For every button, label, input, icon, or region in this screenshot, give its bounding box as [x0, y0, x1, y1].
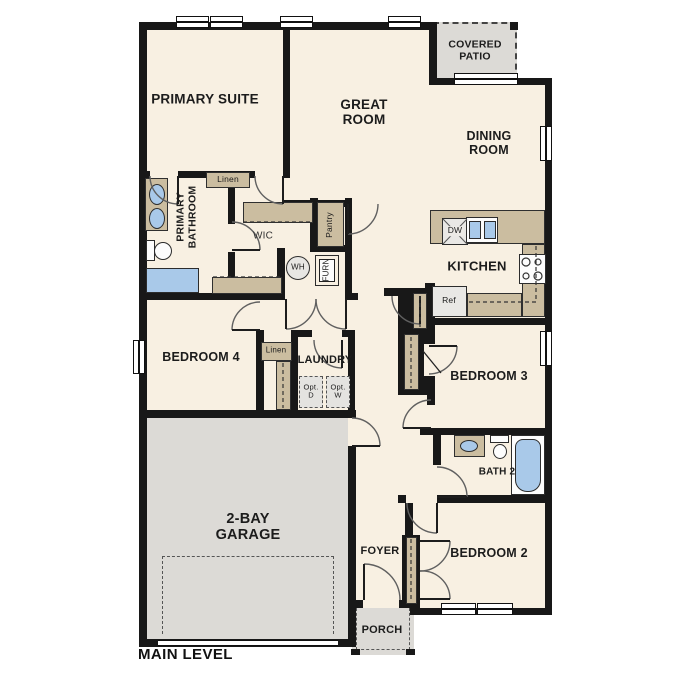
label-dw: DW: [447, 226, 464, 236]
floor-plan: PRIMARY SUITE GREAT ROOM COVERED PATIO D…: [0, 0, 687, 687]
room-label-foyer: FOYER: [361, 545, 400, 557]
bedroom3-leader: [423, 351, 441, 373]
room-label-great-room: GREAT ROOM: [321, 97, 407, 127]
room-label-garage: 2-BAY GARAGE: [198, 511, 298, 543]
room-label-covered-patio: COVERED PATIO: [437, 39, 513, 63]
room-label-kitchen: KITCHEN: [447, 260, 506, 275]
plan-title: MAIN LEVEL: [138, 646, 233, 663]
room-label-bath-2: BATH 2: [478, 466, 516, 477]
label-opt-washer: Opt. W: [328, 384, 348, 401]
room-label-primary-bathroom: PRIMARY BATHROOM: [175, 181, 199, 253]
room-label-wic: WIC: [253, 230, 273, 241]
room-label-bedroom-4: BEDROOM 4: [162, 350, 240, 364]
room-label-dining-room: DINING ROOM: [456, 129, 522, 157]
label-ref: Ref: [442, 296, 456, 306]
label-linen-hall: Linen: [266, 347, 287, 356]
label-opt-dryer: Opt. D: [301, 384, 321, 401]
label-wh: WH: [291, 264, 305, 273]
room-label-bedroom-2: BEDROOM 2: [450, 546, 528, 560]
room-label-primary-suite: PRIMARY SUITE: [150, 91, 260, 106]
room-label-laundry: LAUNDRY: [298, 354, 353, 366]
label-furn: FURN: [323, 258, 332, 281]
label-pantry: Pantry: [325, 212, 335, 238]
room-label-porch: PORCH: [362, 624, 403, 636]
room-label-bedroom-3: BEDROOM 3: [450, 369, 528, 383]
label-linen-primary: Linen: [217, 175, 239, 185]
